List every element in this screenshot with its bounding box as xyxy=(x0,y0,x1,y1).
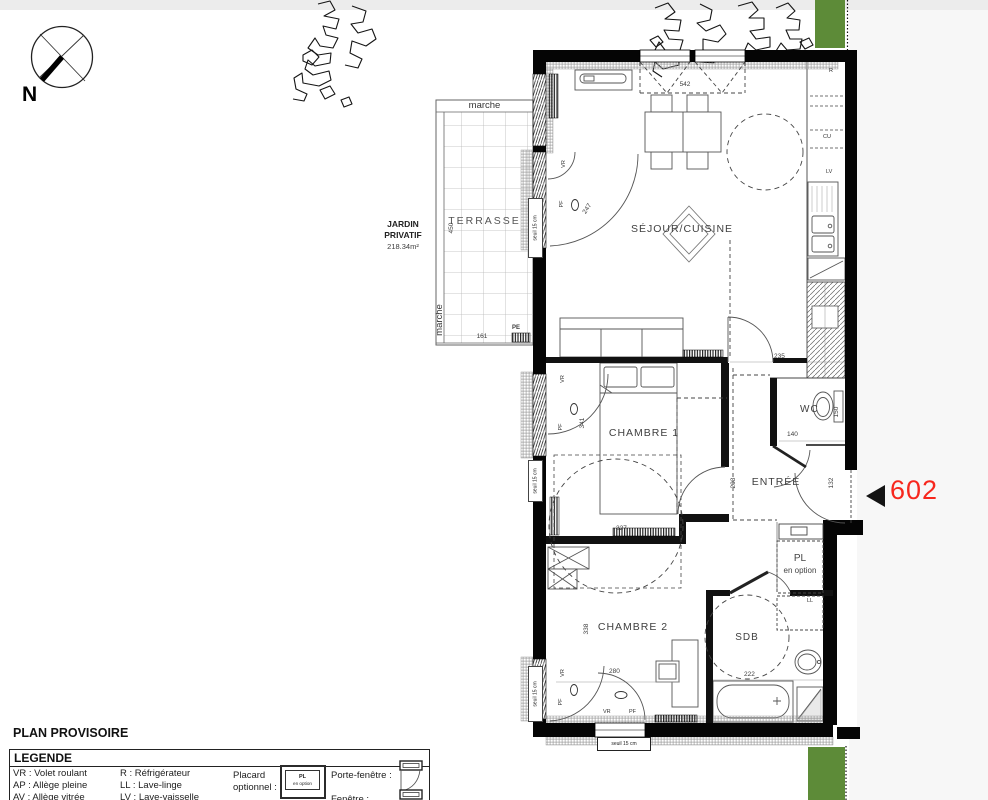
kitchen-dishwasher-label: LV xyxy=(826,170,832,176)
placard-label-line2: en option xyxy=(781,567,819,575)
legend-placard-box: PL en option xyxy=(280,765,326,799)
seuil-label-box: seuil 15 cm xyxy=(528,666,543,722)
oven xyxy=(808,258,845,280)
seuil-label: seuil 15 cm xyxy=(533,215,539,240)
legend-item: LL : Lave-linge xyxy=(120,781,182,791)
legend-item: R : Réfrigérateur xyxy=(120,769,190,779)
legend-header-rule xyxy=(10,750,429,767)
console-table xyxy=(575,70,632,90)
dim-terrace-depth: 450 xyxy=(447,208,457,248)
pe-threshold-icon xyxy=(512,333,530,342)
window-pf-tag: PF xyxy=(556,407,566,447)
room-label-chambre1: CHAMBRE 1 xyxy=(600,428,688,439)
marche-side-label: marche xyxy=(435,295,445,345)
dim-sdb-width: 222 xyxy=(744,672,755,679)
seuil-label-box: seuil 15 cm xyxy=(597,737,651,751)
room-label-wc: WC xyxy=(800,405,819,415)
kitchen-hob-label: CU xyxy=(823,135,831,141)
room-label-sdb: SDB xyxy=(732,633,762,643)
dim-entree-height: 203 xyxy=(729,463,739,503)
window-vr-tag: VR xyxy=(603,710,611,716)
garden-label-line2: PRIVATIF xyxy=(380,231,426,240)
legend-placard-box-inner: PL en option xyxy=(285,770,320,790)
seuil-label: seuil 15 cm xyxy=(533,468,539,493)
legend-placard-box-line2: en option xyxy=(293,781,312,786)
window-pf-tag: PF xyxy=(557,184,567,224)
garden-area-label: 218.34m² xyxy=(380,243,426,251)
seuil-label-box: seuil 15 cm xyxy=(528,198,543,258)
compass-north-label: N xyxy=(22,84,37,105)
garden-label-line1: JARDIN xyxy=(380,220,426,229)
legend-fenetre-label: Fenêtre : xyxy=(331,795,369,800)
legend-title: LEGENDE xyxy=(14,752,72,764)
bathroom-sink xyxy=(795,650,821,674)
room-label-sejour: SÉJOUR/CUISINE xyxy=(620,224,744,235)
legend-placard-label1: Placard xyxy=(233,771,265,781)
sofa xyxy=(560,318,683,357)
dim-chambre1-width: 327 xyxy=(616,526,627,533)
dim-top-window: 542 xyxy=(673,82,697,89)
window-pf-tag: PF xyxy=(629,710,636,716)
legend-placard-label2: optionnel : xyxy=(233,783,277,793)
dim-chambre1-height: 341 xyxy=(578,403,588,443)
technical-shaft xyxy=(807,282,845,378)
dim-kitchen: 235 xyxy=(774,354,785,361)
window-vr-tag: VR xyxy=(559,144,569,184)
fenetre-icon xyxy=(399,789,427,800)
placard-label-line1: PL xyxy=(786,554,814,564)
dim-chambre2-width: 280 xyxy=(609,669,620,676)
kitchen-sink xyxy=(808,182,838,256)
terrace xyxy=(436,100,533,721)
washer-label: LL xyxy=(807,599,813,605)
window-pf-tag: PF xyxy=(556,682,566,722)
seuil-label: seuil 15 cm xyxy=(533,681,539,706)
dim-chambre2-height: 338 xyxy=(582,609,592,649)
legend-porte-fenetre-label: Porte-fenêtre : xyxy=(331,771,392,781)
floor-plan-page: N JARDIN PRIVATIF 218.34m² marche marche… xyxy=(0,0,988,800)
room-label-entree: ENTRÉE xyxy=(747,477,805,488)
marche-top-label: marche xyxy=(436,101,533,111)
dim-terrace-width: 161 xyxy=(470,334,494,341)
unit-number-label: 602 xyxy=(890,477,938,504)
pe-label: PE xyxy=(512,325,520,331)
plan-provisoire-label: PLAN PROVISOIRE xyxy=(13,727,128,740)
legend-item: AV : Allège vitrée xyxy=(13,793,85,800)
legend-item: VR : Volet roulant xyxy=(13,769,87,779)
placard-shelf xyxy=(779,524,823,539)
window-vr-tag: VR xyxy=(558,359,568,399)
dim-wc-height: 150 xyxy=(832,392,842,432)
legend-item: AP : Allège pleine xyxy=(13,781,87,791)
room-label-chambre2: CHAMBRE 2 xyxy=(589,622,677,633)
kitchen-fridge-label: R xyxy=(829,69,833,75)
dim-entree-door: 132 xyxy=(827,463,837,503)
legend-item: LV : Lave-vaisselle xyxy=(120,793,199,800)
dim-wc-width: 140 xyxy=(787,432,798,439)
seuil-label: seuil 15 cm xyxy=(611,741,636,747)
seuil-label-box: seuil 15 cm xyxy=(528,460,543,502)
compass-icon xyxy=(32,27,93,88)
